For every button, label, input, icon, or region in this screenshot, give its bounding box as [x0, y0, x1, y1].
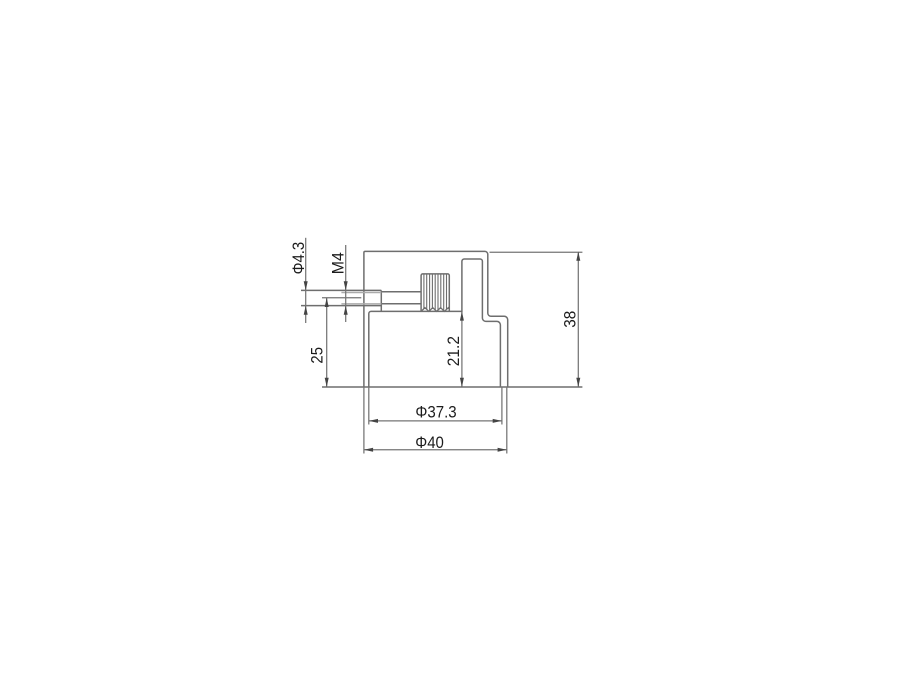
svg-text:21.2: 21.2 — [445, 336, 463, 366]
svg-text:25: 25 — [308, 347, 326, 364]
svg-text:Φ40: Φ40 — [415, 434, 444, 452]
svg-text:M4: M4 — [329, 252, 347, 274]
svg-text:38: 38 — [561, 311, 579, 328]
svg-text:Φ4.3: Φ4.3 — [290, 242, 308, 275]
svg-text:Φ37.3: Φ37.3 — [415, 404, 456, 422]
